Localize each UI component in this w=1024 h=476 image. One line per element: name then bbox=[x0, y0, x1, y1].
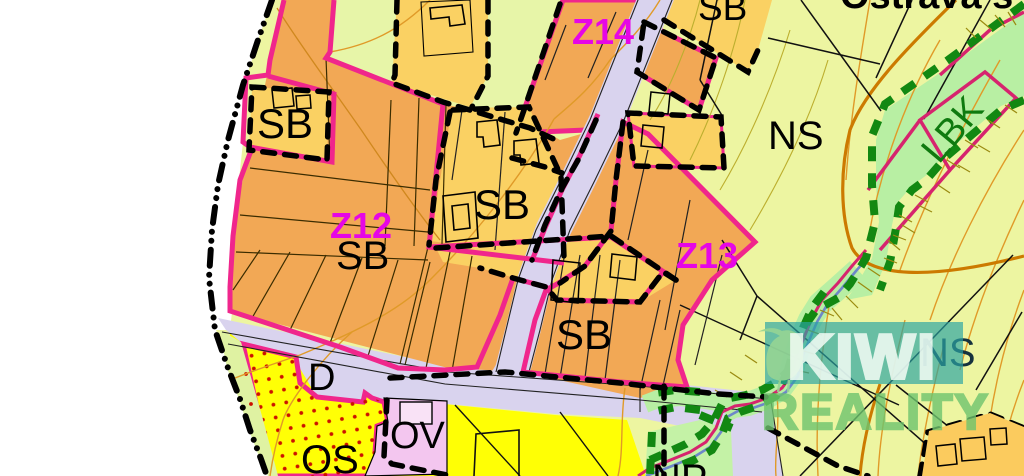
svg-text:SB: SB bbox=[556, 311, 612, 358]
svg-text:OS: OS bbox=[301, 438, 359, 476]
svg-text:SB: SB bbox=[257, 100, 313, 147]
svg-text:Z14: Z14 bbox=[572, 11, 634, 52]
svg-text:REALITY: REALITY bbox=[762, 384, 990, 440]
svg-text:OV: OV bbox=[390, 415, 446, 457]
svg-text:D: D bbox=[308, 357, 335, 399]
svg-text:NS: NS bbox=[768, 114, 824, 158]
svg-text:SB: SB bbox=[474, 181, 530, 228]
svg-text:SB: SB bbox=[698, 0, 747, 28]
svg-text:Ostrava s č: Ostrava s č bbox=[840, 0, 1024, 17]
svg-text:Z13: Z13 bbox=[676, 235, 738, 276]
svg-text:SB: SB bbox=[336, 234, 389, 278]
svg-text:KIWI: KIWI bbox=[788, 323, 938, 392]
svg-text:NP: NP bbox=[652, 457, 708, 476]
